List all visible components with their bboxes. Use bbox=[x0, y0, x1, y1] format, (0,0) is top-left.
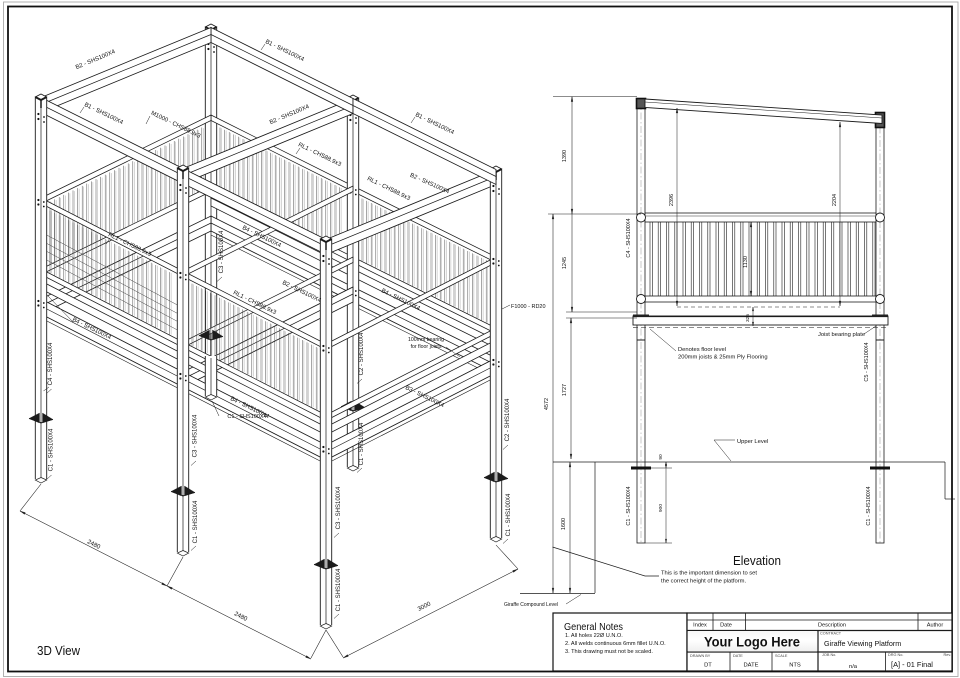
svg-text:1. All holes 22Ø U.N.O.: 1. All holes 22Ø U.N.O. bbox=[565, 633, 623, 639]
svg-text:90: 90 bbox=[658, 454, 664, 460]
svg-text:Giraffe Viewing Platform: Giraffe Viewing Platform bbox=[824, 639, 901, 648]
svg-text:C1 - SHS100X4: C1 - SHS100X4 bbox=[359, 422, 365, 465]
svg-text:Description: Description bbox=[818, 623, 846, 629]
svg-text:C3 - SHS100X4: C3 - SHS100X4 bbox=[193, 414, 199, 457]
svg-text:SCALE: SCALE bbox=[775, 654, 788, 658]
svg-text:2396: 2396 bbox=[669, 194, 675, 206]
svg-text:1130: 1130 bbox=[743, 256, 749, 268]
svg-text:C3 - SHS100X4: C3 - SHS100X4 bbox=[219, 230, 225, 273]
svg-text:C2 - SHS100X4: C2 - SHS100X4 bbox=[359, 332, 365, 375]
svg-text:C2 - SHS100X4: C2 - SHS100X4 bbox=[505, 398, 511, 441]
svg-text:CONTRACT: CONTRACT bbox=[820, 632, 842, 636]
svg-text:NTS: NTS bbox=[789, 663, 801, 669]
svg-text:Your Logo Here: Your Logo Here bbox=[704, 635, 800, 650]
svg-text:DT: DT bbox=[704, 663, 712, 669]
svg-text:C1 - SHS100X4: C1 - SHS100X4 bbox=[866, 486, 872, 525]
svg-text:DRAWN BY: DRAWN BY bbox=[690, 654, 711, 658]
svg-text:n/a: n/a bbox=[849, 664, 858, 670]
svg-text:[A] - 01 Final: [A] - 01 Final bbox=[891, 660, 933, 669]
svg-text:2. All welds continuous 6mm f: 2. All welds continuous 6mm fillet U.N.O… bbox=[565, 641, 666, 647]
svg-text:C4 - SHS100X4: C4 - SHS100X4 bbox=[48, 342, 54, 385]
svg-text:for floor joists: for floor joists bbox=[411, 344, 442, 350]
svg-text:C5 - SHS100X4: C5 - SHS100X4 bbox=[864, 342, 870, 381]
svg-text:General Notes: General Notes bbox=[564, 622, 623, 633]
svg-text:100mm bearing: 100mm bearing bbox=[408, 337, 444, 343]
svg-text:Elevation: Elevation bbox=[733, 553, 781, 568]
svg-text:the correct height of the plat: the correct height of the platform. bbox=[661, 579, 746, 585]
svg-text:Joist bearing plate: Joist bearing plate bbox=[818, 332, 865, 338]
svg-text:C1 - SHS100X4: C1 - SHS100X4 bbox=[336, 568, 342, 611]
svg-text:C1 - SHS100X4: C1 - SHS100X4 bbox=[193, 500, 199, 543]
svg-text:C1 - SHS100X4: C1 - SHS100X4 bbox=[506, 493, 512, 536]
svg-text:1245: 1245 bbox=[562, 257, 568, 269]
svg-text:DATE: DATE bbox=[743, 663, 758, 669]
svg-text:JOB No.: JOB No. bbox=[822, 653, 836, 657]
svg-text:3. This drawing must not be s: 3. This drawing must not be scaled. bbox=[565, 649, 653, 655]
svg-text:Giraffe Compound Level: Giraffe Compound Level bbox=[504, 602, 558, 608]
svg-text:DATE: DATE bbox=[733, 654, 743, 658]
svg-text:Upper Level: Upper Level bbox=[737, 439, 768, 445]
svg-text:Author: Author bbox=[927, 623, 944, 629]
svg-text:C3 - SHS100X4: C3 - SHS100X4 bbox=[336, 486, 342, 529]
svg-text:4572: 4572 bbox=[544, 398, 550, 410]
svg-text:Index: Index bbox=[693, 623, 707, 629]
svg-text:This is the important dimensio: This is the important dimension to set bbox=[661, 571, 757, 577]
svg-text:2204: 2204 bbox=[832, 194, 838, 206]
svg-text:1600: 1600 bbox=[561, 518, 567, 530]
svg-text:C1 - SHS100X4: C1 - SHS100X4 bbox=[626, 486, 632, 525]
svg-text:200mm joists & 25mm Ply Floori: 200mm joists & 25mm Ply Flooring bbox=[678, 355, 768, 361]
svg-text:900: 900 bbox=[658, 504, 664, 512]
svg-text:F1000 - RD20: F1000 - RD20 bbox=[511, 304, 546, 310]
svg-text:1390: 1390 bbox=[562, 150, 568, 162]
svg-text:3D View: 3D View bbox=[37, 643, 81, 658]
svg-text:C4 - SHS100X4: C4 - SHS100X4 bbox=[626, 218, 632, 257]
svg-text:Date: Date bbox=[720, 623, 732, 629]
svg-text:Rev.: Rev. bbox=[943, 653, 951, 657]
svg-text:325: 325 bbox=[745, 314, 751, 322]
svg-text:DRG No.: DRG No. bbox=[888, 653, 903, 657]
svg-text:C1 - SHS100X4: C1 - SHS100X4 bbox=[49, 428, 55, 471]
svg-text:1727: 1727 bbox=[562, 384, 568, 396]
svg-text:Denotes floor level: Denotes floor level bbox=[678, 347, 726, 353]
svg-text:C1 - SHS100X4: C1 - SHS100X4 bbox=[227, 414, 266, 420]
